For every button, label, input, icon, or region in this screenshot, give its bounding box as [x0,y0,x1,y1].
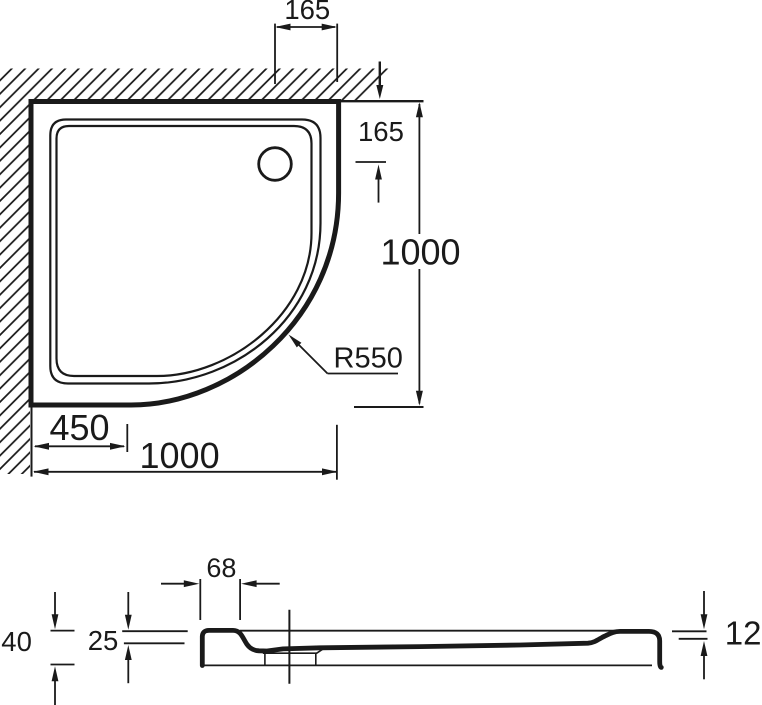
svg-text:165: 165 [358,116,404,147]
svg-text:1000: 1000 [380,232,460,273]
svg-text:68: 68 [206,553,236,583]
svg-text:1000: 1000 [140,435,220,476]
svg-text:40: 40 [1,626,32,657]
svg-text:450: 450 [50,407,110,448]
svg-text:165: 165 [284,0,330,25]
svg-text:R550: R550 [334,343,403,375]
svg-text:25: 25 [88,625,119,656]
svg-text:12: 12 [725,615,762,652]
